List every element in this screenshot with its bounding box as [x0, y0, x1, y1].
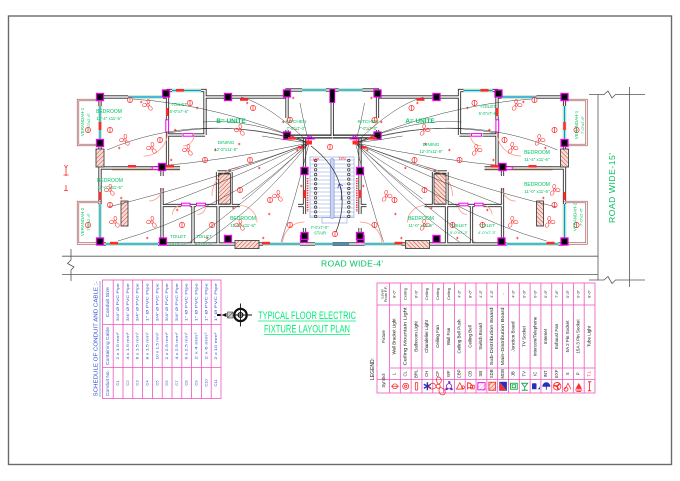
svg-text:3/4" Ø PVC Pipe: 3/4" Ø PVC Pipe: [116, 283, 120, 321]
svg-text:BEDROOM: BEDROOM: [524, 150, 550, 156]
svg-text:TOILET: TOILET: [479, 223, 495, 228]
svg-text:8'-0": 8'-0": [392, 290, 397, 298]
svg-text:5'-0"x7'-6": 5'-0"x7'-6": [170, 109, 189, 114]
svg-text:Wall Fan: Wall Fan: [446, 327, 451, 345]
svg-text:C6: C6: [164, 380, 169, 386]
svg-text:Ceiling Fan: Ceiling Fan: [435, 325, 440, 348]
svg-text:7'-0"x2'-6": 7'-0"x2'-6": [579, 207, 584, 226]
svg-text:VERANDAH-1: VERANDAH-1: [574, 110, 579, 139]
svg-text:C5: C5: [154, 380, 159, 386]
svg-text:C9: C9: [194, 380, 199, 386]
svg-text:12'-3"x11'-9": 12'-3"x11'-9": [214, 147, 238, 152]
svg-text:C10: C10: [203, 379, 208, 387]
svg-text:BEDROOM: BEDROOM: [96, 109, 122, 115]
svg-text:Ceiling: Ceiling: [446, 288, 451, 300]
svg-text:DN: DN: [339, 156, 346, 161]
svg-text:Main-Distribution Board: Main-Distribution Board: [500, 307, 505, 366]
svg-text:C2: C2: [125, 380, 130, 386]
svg-text:7'-0"x2'-6": 7'-0"x2'-6": [86, 212, 91, 231]
svg-text:Conduit Size: Conduit Size: [105, 286, 110, 317]
svg-text:C4: C4: [145, 380, 150, 386]
svg-text:BEDROOM: BEDROOM: [524, 182, 550, 188]
svg-text:11'-0" x11'-6": 11'-0" x11'-6": [524, 189, 550, 194]
svg-text:2 x 6 mm²: 2 x 6 mm²: [204, 331, 208, 359]
svg-text:From F.F,: From F.F,: [384, 286, 388, 302]
svg-text:4'-0"x7'-3": 4'-0"x7'-3": [478, 230, 497, 235]
svg-text:C1: C1: [115, 380, 120, 386]
svg-text:Chandelier Light: Chandelier Light: [424, 319, 429, 353]
svg-text:TOILET: TOILET: [170, 234, 186, 239]
svg-text:T.L: T.L: [586, 370, 591, 376]
svg-text:7'-0"x2'-6": 7'-0"x2'-6": [86, 112, 91, 131]
svg-text:Ceiling Mountain Light: Ceiling Mountain Light: [403, 307, 408, 366]
svg-text:IC: IC: [532, 372, 537, 376]
svg-text:0'-9": 0'-9": [565, 290, 570, 298]
svg-text:15A 3 Pin Socket: 15A 3 Pin Socket: [576, 319, 581, 354]
svg-text:11'-0" x11'-6": 11'-0" x11'-6": [408, 223, 434, 228]
svg-text:4 x 1.5 mm²: 4 x 1.5 mm²: [126, 331, 130, 359]
svg-text:VERANDAH-1: VERANDAH-1: [80, 107, 85, 136]
svg-text:A= UNITE: A= UNITE: [405, 118, 435, 125]
svg-text:6 x 1.5 mm²: 6 x 1.5 mm²: [136, 331, 140, 359]
svg-text:Switch Board: Switch Board: [478, 323, 483, 350]
svg-text:UP: UP: [313, 157, 319, 162]
svg-text:C7: C7: [174, 380, 179, 386]
svg-text:BEDROOM: BEDROOM: [408, 216, 434, 222]
svg-text:Sub-Distribution Board: Sub-Distribution Board: [489, 307, 494, 366]
svg-text:11'-4" x11'-5": 11'-4" x11'-5": [96, 116, 122, 121]
svg-text:S: S: [565, 372, 570, 375]
svg-text:Ceiling: Ceiling: [424, 288, 429, 300]
svg-text:1" Ø PVC Pipe: 1" Ø PVC Pipe: [185, 283, 189, 321]
svg-text:4 x 2.5 mm²: 4 x 2.5 mm²: [175, 331, 179, 359]
svg-text:SB: SB: [478, 371, 483, 377]
svg-text:TYPICAL FLOOR ELECTRIC: TYPICAL FLOOR ELECTRIC: [258, 310, 356, 322]
svg-text:Junction Board: Junction Board: [511, 321, 516, 352]
svg-text:C8: C8: [184, 380, 189, 386]
svg-text:VERANDAH-2: VERANDAH-2: [80, 207, 85, 236]
svg-text:WF: WF: [446, 370, 451, 377]
svg-text:FIXTURE LAYOUT PLAN: FIXTURE LAYOUT PLAN: [264, 324, 350, 336]
svg-text:Ceiling Bell Push: Ceiling Bell Push: [457, 319, 462, 354]
svg-text:Internet: Internet: [543, 328, 548, 344]
svg-text:BEDROOM: BEDROOM: [97, 178, 123, 184]
svg-text:Bathroom Light: Bathroom Light: [413, 320, 418, 351]
svg-text:EXF: EXF: [554, 369, 559, 378]
svg-text:Ceiling: Ceiling: [403, 288, 408, 300]
svg-text:11'-0" x11'-5": 11'-0" x11'-5": [97, 185, 123, 190]
svg-text:3/4" Ø PVC Pipe: 3/4" Ø PVC Pipe: [155, 283, 159, 321]
svg-text:ROAD WIDE-4': ROAD WIDE-4': [321, 259, 383, 269]
svg-text:CBP: CBP: [457, 369, 462, 378]
svg-text:CH: CH: [424, 371, 429, 377]
svg-text:0'-9": 0'-9": [532, 290, 537, 298]
svg-text:VERANDAH-2: VERANDAH-2: [573, 202, 578, 231]
svg-text:1" Ø PVC Pipe: 1" Ø PVC Pipe: [214, 283, 218, 321]
svg-text:Symbol: Symbol: [381, 373, 386, 387]
svg-text:4'-3": 4'-3": [457, 290, 462, 298]
svg-text:BEDROOM: BEDROOM: [230, 216, 256, 222]
svg-text:TV: TV: [522, 371, 527, 377]
svg-text:TOILET: TOILET: [196, 234, 212, 239]
svg-text:8'-0": 8'-0": [467, 290, 472, 298]
svg-text:C11: C11: [213, 379, 218, 387]
svg-text:Containing Cable: Containing Cable: [105, 326, 110, 365]
svg-text:Fixture: Fixture: [381, 329, 386, 342]
svg-text:Conduit No.: Conduit No.: [105, 370, 110, 396]
svg-text:5'-0"x7'-6": 5'-0"x7'-6": [479, 111, 498, 116]
svg-text:TOILET: TOILET: [171, 102, 188, 108]
svg-text:BRL: BRL: [413, 369, 418, 378]
svg-text:DINING: DINING: [423, 142, 440, 148]
svg-text:2 x 2.5 mm²: 2 x 2.5 mm²: [165, 331, 169, 359]
svg-text:8'-0": 8'-0": [586, 290, 591, 298]
svg-text:7'-0"x2'-6": 7'-0"x2'-6": [580, 115, 585, 134]
svg-text:L: L: [392, 372, 397, 375]
svg-text:4'-3": 4'-3": [511, 290, 516, 298]
svg-text:KITCHEN: KITCHEN: [357, 119, 379, 125]
svg-text:C3: C3: [135, 380, 140, 386]
svg-text:3/4" Ø PVC Pipe: 3/4" Ø PVC Pipe: [136, 283, 140, 321]
svg-text:P: P: [576, 372, 581, 375]
svg-text:Wall Bracket Light: Wall Bracket Light: [392, 318, 397, 355]
svg-text:JB: JB: [511, 371, 516, 376]
svg-text:7'-0"x7'-0": 7'-0"x7'-0": [287, 126, 306, 131]
svg-text:0'-9": 0'-9": [543, 290, 548, 298]
svg-text:6'-9": 6'-9": [413, 290, 418, 298]
svg-text:TOILET: TOILET: [480, 104, 497, 110]
svg-text:7'-6": 7'-6": [554, 290, 559, 298]
svg-text:CB: CB: [467, 371, 472, 377]
svg-text:DINING: DINING: [218, 140, 235, 146]
svg-text:Ceiling: Ceiling: [435, 288, 440, 300]
svg-text:5A 2 Pin Socket: 5A 2 Pin Socket: [565, 320, 570, 353]
svg-text:STAIR: STAIR: [314, 231, 326, 236]
svg-text:3/4" Ø PVC Pipe: 3/4" Ø PVC Pipe: [175, 283, 179, 321]
svg-text:6 x 2.5 mm²: 6 x 2.5 mm²: [185, 331, 189, 359]
svg-text:0'-9": 0'-9": [522, 290, 527, 298]
svg-text:Tube Light: Tube Light: [586, 325, 591, 347]
svg-text:4'-3": 4'-3": [478, 290, 483, 298]
svg-text:MDB: MDB: [500, 369, 505, 379]
svg-text:11'-0" x11'-6": 11'-0" x11'-6": [230, 223, 256, 228]
svg-text:INT: INT: [543, 370, 548, 377]
svg-text:5'-0"x7'-3": 5'-0"x7'-3": [169, 241, 188, 246]
svg-text:SCHEDULE OF CONDUIT AND CABLE: SCHEDULE OF CONDUIT AND CABLE :-: [94, 281, 100, 396]
svg-text:2 x 4 mm²: 2 x 4 mm²: [195, 331, 199, 359]
svg-text:Ceiling Bell: Ceiling Bell: [467, 325, 472, 348]
svg-text:ROAD WIDE-15': ROAD WIDE-15': [607, 153, 617, 223]
svg-text:8 x 1.5 mm²: 8 x 1.5 mm²: [146, 331, 150, 359]
svg-text:CL: CL: [403, 370, 408, 376]
svg-text:CF: CF: [435, 371, 440, 377]
svg-text:1" Ø PVC Pipe: 1" Ø PVC Pipe: [146, 283, 150, 321]
svg-text:3/4" Ø PVC Pipe: 3/4" Ø PVC Pipe: [165, 283, 169, 321]
svg-text:F-0'x7'-0": F-0'x7'-0": [311, 225, 329, 230]
svg-text:7'-0"x7'-0": 7'-0"x7'-0": [359, 126, 378, 131]
svg-text:Exhaust Fan: Exhaust Fan: [554, 323, 559, 349]
svg-text:12'-3"x11'-9": 12'-3"x11'-9": [419, 149, 443, 154]
svg-text:TOILET: TOILET: [451, 223, 467, 228]
svg-text:TV Socket: TV Socket: [522, 325, 527, 347]
svg-text:3/4" Ø PVC Pipe: 3/4" Ø PVC Pipe: [126, 283, 130, 321]
svg-text:2 x 1.5 mm²: 2 x 1.5 mm²: [116, 331, 120, 359]
svg-text:1" Ø PVC Pipe: 1" Ø PVC Pipe: [195, 283, 199, 321]
svg-text:0'-9": 0'-9": [576, 290, 581, 298]
svg-text:..: ..: [500, 293, 505, 295]
svg-text:LEGEND:: LEGEND:: [370, 358, 376, 380]
svg-text:B= UNITE: B= UNITE: [216, 118, 246, 125]
svg-text:1" Ø PVC Pipe: 1" Ø PVC Pipe: [204, 283, 208, 321]
svg-text:Intercom/Telephone: Intercom/Telephone: [532, 316, 537, 356]
svg-text:4'-3": 4'-3": [489, 290, 494, 298]
svg-text:5'-0"x7'-3": 5'-0"x7'-3": [450, 230, 469, 235]
svg-text:2 x 10 mm²: 2 x 10 mm²: [214, 331, 218, 359]
svg-text:10 x 1.5 mm²: 10 x 1.5 mm²: [155, 331, 159, 359]
svg-text:4'-0"x7'-3": 4'-0"x7'-3": [195, 241, 214, 246]
svg-text:KITCHEN: KITCHEN: [285, 119, 307, 125]
svg-text:SDB: SDB: [489, 369, 494, 378]
svg-text:11'-4" x11'-6": 11'-4" x11'-6": [524, 157, 550, 162]
